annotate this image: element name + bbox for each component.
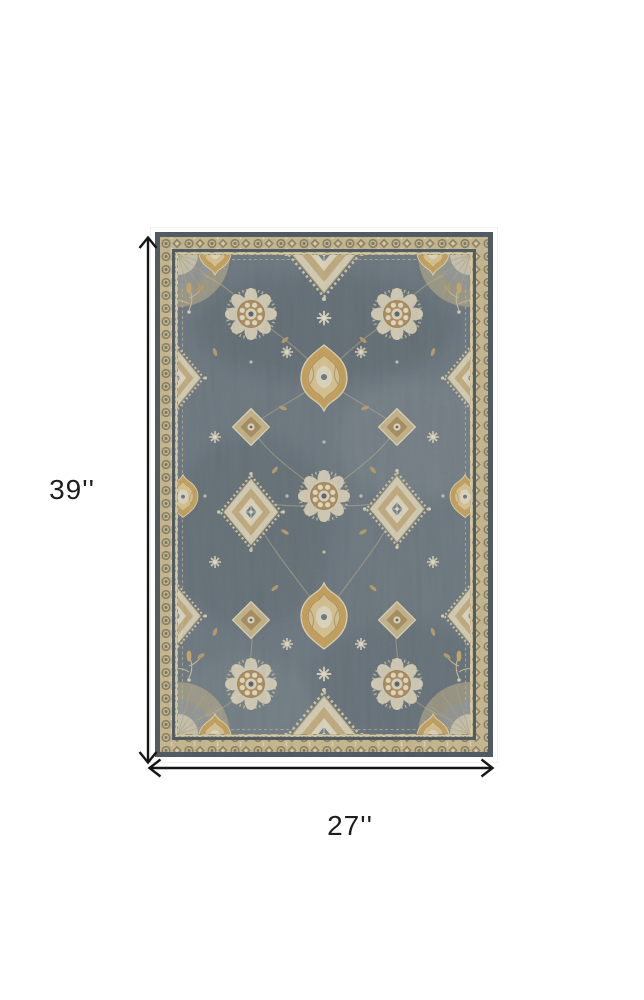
width-dimension-label: 27'' xyxy=(308,809,392,843)
height-dimension-label: 39'' xyxy=(36,473,108,507)
dimension-diagram: 39'' 27'' xyxy=(0,0,644,1000)
rug-product-image xyxy=(155,232,493,757)
